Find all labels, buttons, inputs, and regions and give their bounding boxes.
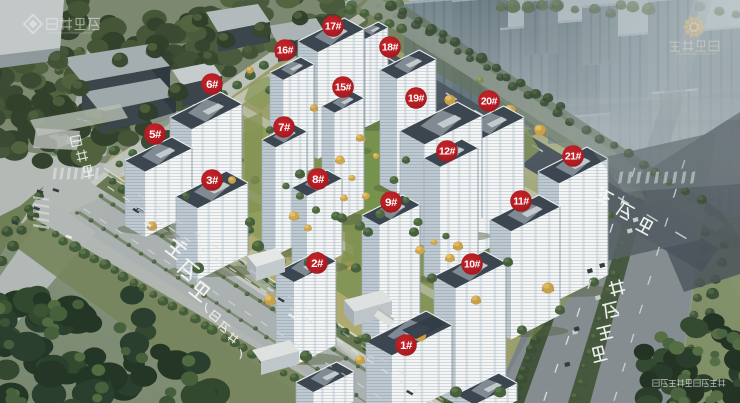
svg-text:1#: 1# bbox=[400, 340, 413, 352]
svg-text:19#: 19# bbox=[408, 94, 425, 105]
svg-text:16#: 16# bbox=[277, 46, 294, 57]
svg-text:15#: 15# bbox=[335, 83, 352, 94]
svg-text:3#: 3# bbox=[206, 175, 219, 187]
svg-text:7#: 7# bbox=[278, 122, 291, 134]
svg-text:18#: 18# bbox=[382, 43, 399, 54]
svg-text:6#: 6# bbox=[206, 79, 219, 91]
svg-text:5#: 5# bbox=[149, 129, 162, 141]
svg-text:11#: 11# bbox=[513, 197, 529, 208]
svg-text:10#: 10# bbox=[464, 260, 481, 271]
svg-text:9#: 9# bbox=[385, 197, 398, 209]
svg-text:17#: 17# bbox=[325, 22, 342, 33]
svg-text:21#: 21# bbox=[565, 152, 582, 163]
svg-text:20#: 20# bbox=[481, 97, 498, 108]
svg-text:12#: 12# bbox=[439, 147, 456, 158]
svg-text:8#: 8# bbox=[312, 174, 325, 186]
svg-text:2#: 2# bbox=[311, 258, 324, 270]
